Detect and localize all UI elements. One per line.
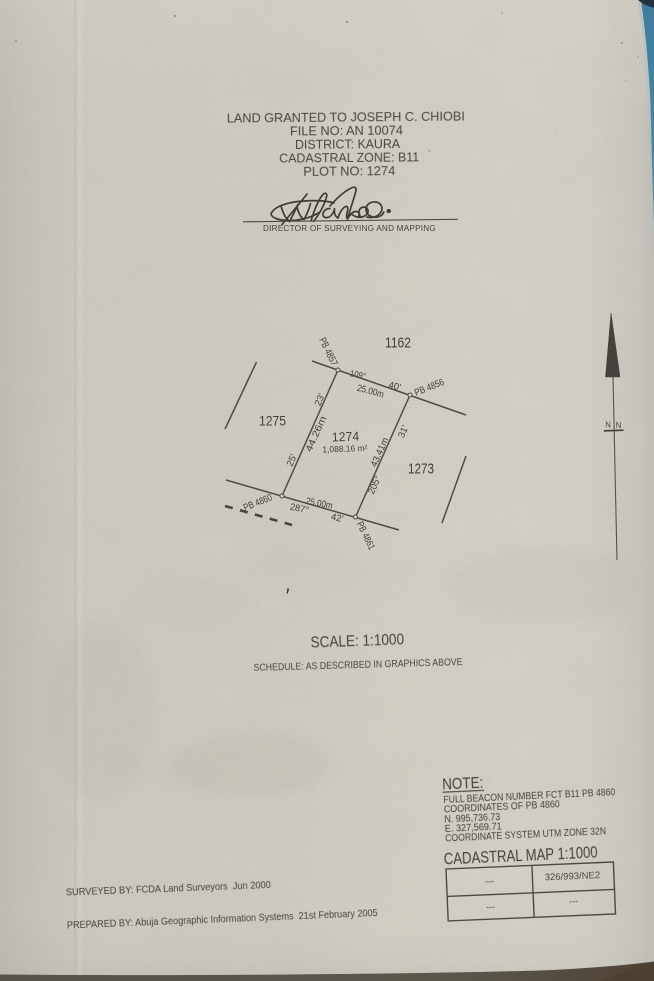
- svg-text:---: ---: [485, 876, 494, 886]
- svg-text:326/993/NE2: 326/993/NE2: [544, 870, 600, 883]
- svg-text:`: `: [428, 149, 431, 159]
- svg-text:1162: 1162: [385, 335, 411, 352]
- svg-text:N: N: [605, 421, 611, 430]
- svg-text:---: ---: [569, 896, 578, 906]
- svg-text:N: N: [616, 421, 622, 430]
- svg-text:1274: 1274: [332, 429, 360, 445]
- svg-text:SCALE: 1:1000: SCALE: 1:1000: [310, 631, 404, 651]
- svg-text:1275: 1275: [259, 413, 286, 429]
- svg-text:PLOT NO: 1274: PLOT NO: 1274: [303, 163, 395, 179]
- svg-text:1273: 1273: [408, 462, 434, 478]
- svg-text:1,088.16 m²: 1,088.16 m²: [322, 443, 367, 455]
- svg-text:DIRECTOR OF SURVEYING AND MAPP: DIRECTOR OF SURVEYING AND MAPPING: [263, 223, 436, 233]
- svg-text:---: ---: [486, 901, 495, 911]
